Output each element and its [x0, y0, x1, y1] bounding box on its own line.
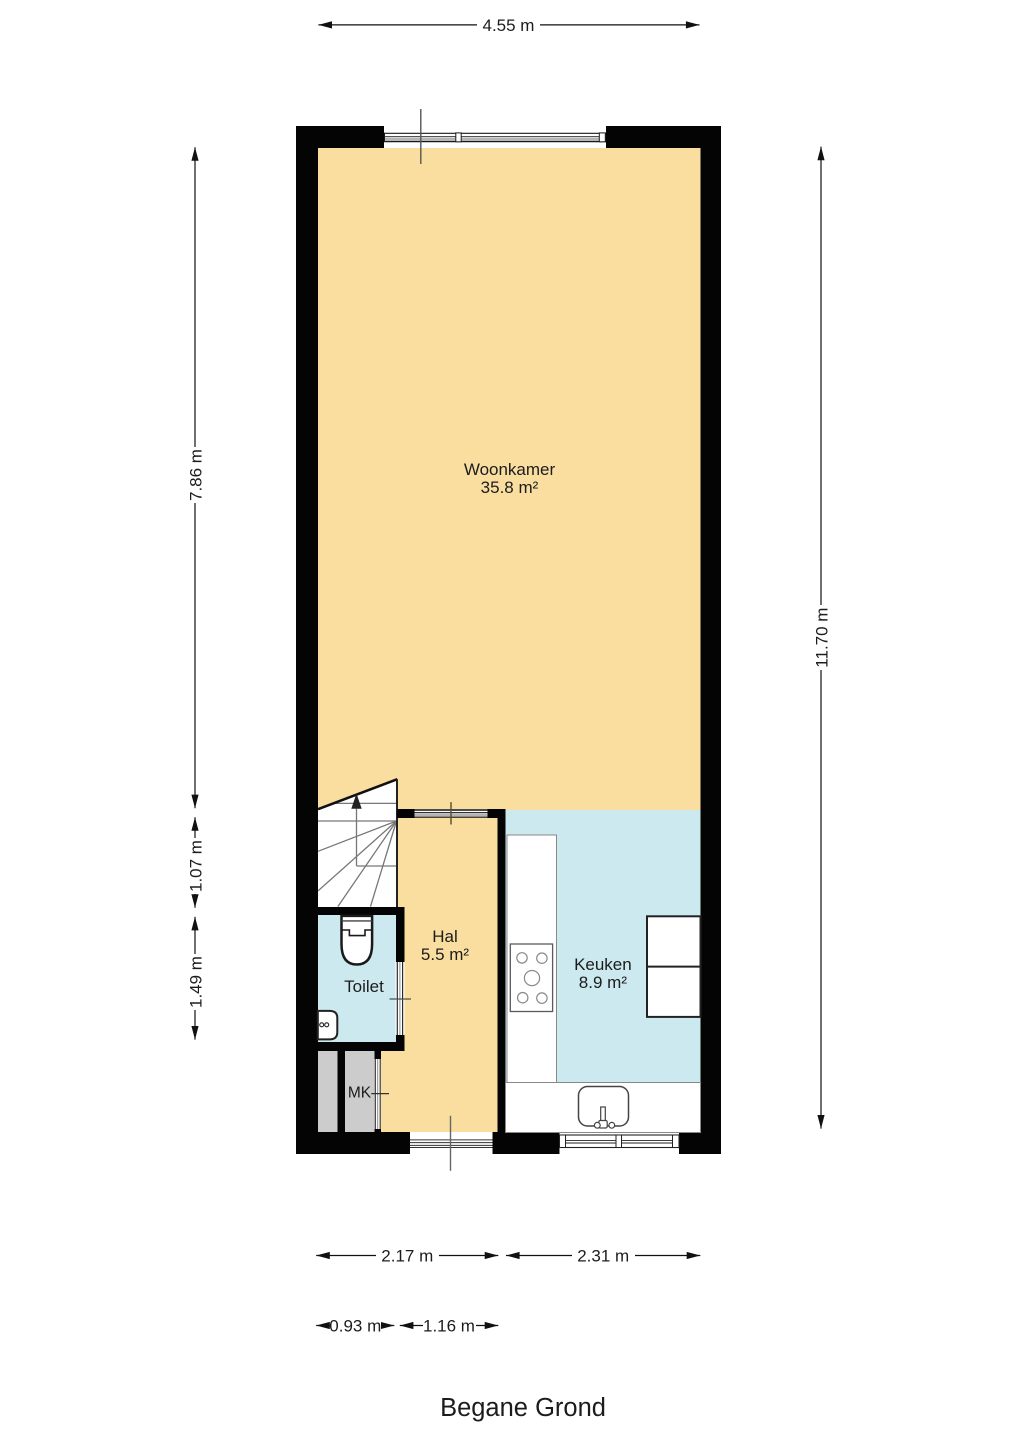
svg-text:7.86 m: 7.86 m [186, 449, 205, 501]
svg-text:Begane Grond: Begane Grond [440, 1394, 606, 1422]
svg-text:8.9 m²: 8.9 m² [579, 973, 628, 992]
svg-text:5.5 m²: 5.5 m² [421, 945, 470, 964]
svg-text:11.70 m: 11.70 m [812, 608, 831, 668]
svg-text:4.55 m: 4.55 m [483, 16, 535, 35]
svg-text:Toilet: Toilet [344, 977, 384, 996]
svg-text:1.16 m: 1.16 m [423, 1316, 475, 1335]
svg-text:Hal: Hal [432, 927, 458, 946]
svg-text:Woonkamer: Woonkamer [464, 460, 556, 479]
svg-text:35.8 m²: 35.8 m² [481, 478, 539, 497]
svg-text:2.31 m: 2.31 m [577, 1246, 629, 1265]
svg-text:0.93 m: 0.93 m [329, 1316, 381, 1335]
svg-text:1.07 m: 1.07 m [186, 840, 205, 892]
svg-text:1.49 m: 1.49 m [186, 956, 205, 1008]
svg-text:MK: MK [348, 1085, 372, 1102]
svg-text:Keuken: Keuken [574, 955, 632, 974]
svg-text:2.17 m: 2.17 m [381, 1246, 433, 1265]
